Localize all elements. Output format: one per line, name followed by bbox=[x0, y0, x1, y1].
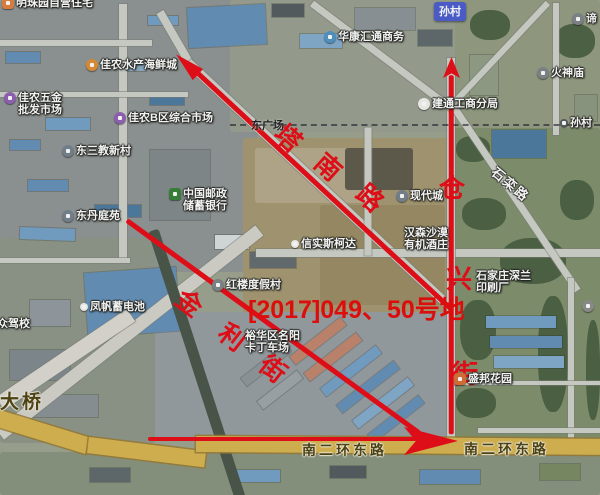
map-terrain bbox=[560, 180, 594, 220]
map-terrain bbox=[28, 180, 68, 191]
map-terrain bbox=[490, 336, 562, 348]
satellite-map-canvas[interactable]: 塔南路金利街仓兴街 [2017]049、50号地 明珠园自营住宅佳农水产海鲜城佳… bbox=[0, 0, 600, 495]
dongsanjiao-village-label: 东三教新村 bbox=[76, 145, 131, 157]
poi-honglou-resort[interactable]: 红楼度假村 bbox=[212, 279, 281, 291]
label-east-plaza: 东广场 bbox=[251, 117, 284, 133]
mingyang-karting-label: 裕华区名阳卡丁车场 bbox=[245, 330, 300, 354]
hansen-winery-label-line: 汉森沙漠 bbox=[404, 227, 448, 239]
xinshi-skoda-label: 信实斯柯达 bbox=[301, 238, 356, 250]
xiandaicheng-icon bbox=[396, 190, 408, 202]
poi-fengfan-battery[interactable]: 凤帆蓄电池 bbox=[80, 301, 145, 313]
map-terrain bbox=[586, 320, 600, 420]
map-terrain bbox=[538, 296, 568, 412]
hansen-winery-label-line: 有机酒庄 bbox=[404, 239, 448, 251]
hansen-winery-label: 汉森沙漠有机酒庄 bbox=[404, 227, 448, 251]
dongdan-tingyuan-label-line: 东丹庭苑 bbox=[76, 210, 120, 222]
map-terrain bbox=[90, 468, 130, 482]
map-terrain bbox=[492, 130, 546, 158]
poi-jianong-hardware-market[interactable]: 佳农五金批发市场 bbox=[4, 92, 62, 116]
poi-dongdan-tingyuan[interactable]: 东丹庭苑 bbox=[62, 210, 120, 222]
honglou-resort-label-line: 红楼度假村 bbox=[226, 279, 281, 291]
map-terrain bbox=[568, 278, 574, 438]
xiandaicheng-label-line: 现代城 bbox=[410, 190, 443, 202]
di-temple-clipped-label: 谛 bbox=[586, 13, 597, 25]
mingyang-karting-label-line: 裕华区名阳 bbox=[245, 330, 300, 342]
map-terrain bbox=[478, 428, 600, 433]
jianong-b-market-label: 佳农B区综合市场 bbox=[128, 112, 213, 124]
road-label-south-2nd-ring-east-2: 南二环东路 bbox=[464, 439, 549, 459]
poi-shengbang-garden[interactable]: 盛邦花园 bbox=[454, 373, 512, 385]
map-terrain bbox=[10, 140, 40, 150]
jianong-hardware-market-label: 佳农五金批发市场 bbox=[18, 92, 62, 116]
poi-di-temple-clipped[interactable]: 谛 bbox=[572, 13, 597, 25]
map-terrain bbox=[187, 4, 267, 48]
shenlan-printing-label: 石家庄深兰印刷厂 bbox=[476, 270, 531, 294]
di-temple-clipped-label-line: 谛 bbox=[586, 13, 597, 25]
di-temple-clipped-icon bbox=[572, 13, 584, 25]
poi-jiantong-aic-branch[interactable]: 建通工商分局 bbox=[418, 98, 498, 110]
jianong-b-market-label-line: 佳农B区综合市场 bbox=[128, 112, 213, 124]
china-post-bank-label: 中国邮政储蓄银行 bbox=[183, 188, 227, 212]
map-terrain bbox=[6, 52, 40, 63]
map-terrain bbox=[494, 356, 564, 368]
jianong-seafood-city-label: 佳农水产海鲜城 bbox=[100, 59, 177, 71]
poi-shenlan-printing[interactable]: 石家庄深兰印刷厂 bbox=[476, 270, 531, 294]
parcel-annotation: [2017]049、50号地 bbox=[248, 290, 465, 326]
xinshi-skoda-icon bbox=[291, 240, 299, 248]
map-terrain bbox=[460, 300, 496, 360]
honglou-resort-icon bbox=[212, 279, 224, 291]
jianong-hardware-market-label-line: 佳农五金 bbox=[18, 92, 62, 104]
dazhong-driving-school-label: 大众驾校 bbox=[0, 318, 30, 330]
poi-mingyang-karting[interactable]: 裕华区名阳卡丁车场 bbox=[245, 330, 300, 354]
fengfan-battery-label-line: 凤帆蓄电池 bbox=[90, 301, 145, 313]
town-badge-suncun[interactable]: 孙村 bbox=[434, 2, 466, 21]
map-terrain bbox=[272, 4, 304, 17]
map-terrain bbox=[456, 388, 496, 418]
shenlan-printing-label-line: 石家庄深兰 bbox=[476, 270, 531, 282]
mingyang-karting-label-line: 卡丁车场 bbox=[245, 342, 300, 354]
poi-dongsanjiao-village[interactable]: 东三教新村 bbox=[62, 145, 131, 157]
poi-unlabeled-poi[interactable] bbox=[582, 300, 594, 312]
china-post-bank-icon bbox=[169, 188, 181, 200]
huakang-huitong-label-line: 华康汇通商务 bbox=[338, 31, 404, 43]
jiantong-aic-branch-label: 建通工商分局 bbox=[432, 98, 498, 110]
poi-mingzhuyuan-housing[interactable]: 明珠园自营住宅 bbox=[2, 0, 93, 9]
map-terrain bbox=[0, 258, 130, 263]
map-terrain bbox=[540, 464, 580, 480]
jianong-seafood-city-label-line: 佳农水产海鲜城 bbox=[100, 59, 177, 71]
jianong-hardware-market-label-line: 批发市场 bbox=[18, 104, 62, 116]
huoshen-temple-label: 火神庙 bbox=[551, 67, 584, 79]
jianong-seafood-city-icon bbox=[86, 59, 98, 71]
jianong-b-market-icon bbox=[114, 112, 126, 124]
mingzhuyuan-housing-label: 明珠园自营住宅 bbox=[16, 0, 93, 9]
shengbang-garden-label-line: 盛邦花园 bbox=[468, 373, 512, 385]
xiandaicheng-label: 现代城 bbox=[410, 190, 443, 202]
china-post-bank-label-line: 储蓄银行 bbox=[183, 200, 227, 212]
map-terrain bbox=[420, 470, 480, 484]
map-terrain bbox=[355, 8, 415, 30]
huoshen-temple-label-line: 火神庙 bbox=[551, 67, 584, 79]
poi-huoshen-temple[interactable]: 火神庙 bbox=[537, 67, 584, 79]
map-terrain bbox=[462, 198, 506, 230]
dongdan-tingyuan-label: 东丹庭苑 bbox=[76, 210, 120, 222]
honglou-resort-label: 红楼度假村 bbox=[226, 279, 281, 291]
suncun-east-icon bbox=[560, 119, 568, 127]
street-annotation-char-仓兴街: 兴 bbox=[446, 266, 472, 292]
poi-huakang-huitong[interactable]: 华康汇通商务 bbox=[324, 31, 404, 43]
map-terrain bbox=[30, 300, 70, 326]
poi-jianong-b-market[interactable]: 佳农B区综合市场 bbox=[114, 112, 213, 124]
xinshi-skoda-label-line: 信实斯柯达 bbox=[301, 238, 356, 250]
map-terrain bbox=[46, 118, 90, 130]
suncun-east-label-line: 孙村 bbox=[570, 117, 592, 129]
jiantong-aic-branch-label-line: 建通工商分局 bbox=[432, 98, 498, 110]
unlabeled-poi-icon bbox=[582, 300, 594, 312]
dongsanjiao-village-label-line: 东三教新村 bbox=[76, 145, 131, 157]
fengfan-battery-icon bbox=[80, 303, 88, 311]
huakang-huitong-icon bbox=[324, 31, 336, 43]
poi-dazhong-driving-school[interactable]: 大众驾校 bbox=[0, 318, 30, 330]
map-terrain bbox=[0, 40, 152, 46]
poi-suncun-east[interactable]: 孙村 bbox=[560, 117, 592, 129]
road-label-bridge: 大桥 bbox=[0, 387, 44, 414]
map-terrain bbox=[330, 466, 366, 478]
road-label-south-2nd-ring-east-1: 南二环东路 bbox=[302, 440, 387, 460]
poi-jianong-seafood-city[interactable]: 佳农水产海鲜城 bbox=[86, 59, 177, 71]
fengfan-battery-label: 凤帆蓄电池 bbox=[90, 301, 145, 313]
poi-xiandaicheng[interactable]: 现代城 bbox=[396, 190, 443, 202]
map-terrain bbox=[20, 227, 75, 241]
dongsanjiao-village-icon bbox=[62, 145, 74, 157]
map-terrain bbox=[486, 316, 556, 328]
poi-china-post-bank[interactable]: 中国邮政储蓄银行 bbox=[169, 188, 227, 212]
mingzhuyuan-housing-icon bbox=[2, 0, 14, 9]
dongdan-tingyuan-icon bbox=[62, 210, 74, 222]
suncun-east-label: 孙村 bbox=[570, 117, 592, 129]
map-terrain bbox=[418, 30, 452, 46]
huakang-huitong-label: 华康汇通商务 bbox=[338, 31, 404, 43]
map-terrain bbox=[470, 10, 510, 40]
huoshen-temple-icon bbox=[537, 67, 549, 79]
mingzhuyuan-housing-label-line: 明珠园自营住宅 bbox=[16, 0, 93, 9]
shenlan-printing-label-line: 印刷厂 bbox=[476, 282, 531, 294]
jiantong-aic-branch-icon bbox=[418, 98, 430, 110]
poi-xinshi-skoda[interactable]: 信实斯柯达 bbox=[291, 238, 356, 250]
map-terrain bbox=[555, 24, 595, 58]
map-terrain bbox=[345, 148, 413, 190]
shengbang-garden-label: 盛邦花园 bbox=[468, 373, 512, 385]
dazhong-driving-school-label-line: 大众驾校 bbox=[0, 318, 30, 330]
jianong-hardware-market-icon bbox=[4, 92, 16, 104]
china-post-bank-label-line: 中国邮政 bbox=[183, 188, 227, 200]
poi-hansen-winery[interactable]: 汉森沙漠有机酒庄 bbox=[404, 227, 448, 251]
shengbang-garden-icon bbox=[454, 373, 466, 385]
